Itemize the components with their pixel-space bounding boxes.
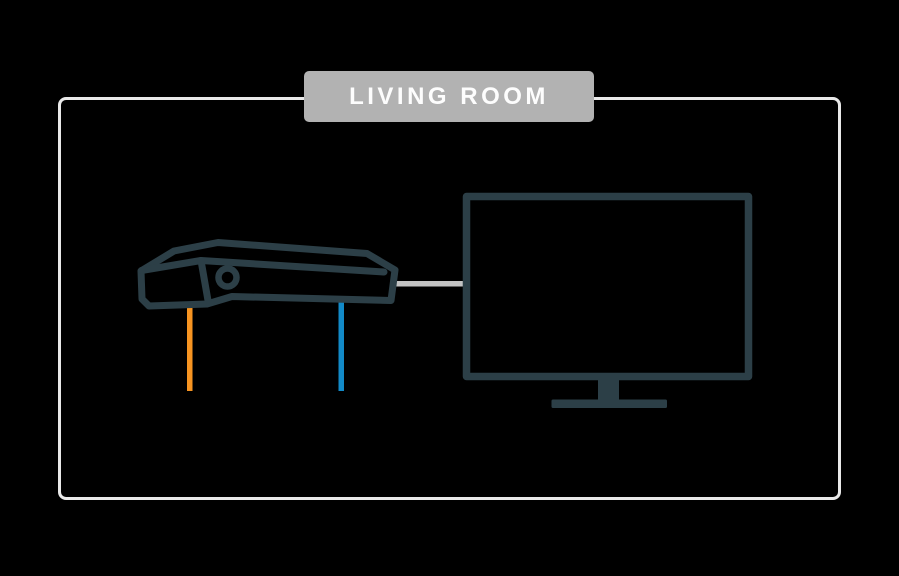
tv-frame: [467, 197, 749, 377]
tv-stand-base: [552, 400, 668, 409]
connection-cable: [390, 281, 466, 287]
set-top-box-icon: [141, 243, 395, 307]
blue-cable: [339, 296, 345, 391]
room-label-badge: LIVING ROOM: [304, 71, 594, 122]
orange-cable: [187, 296, 193, 391]
set-top-box-body: [141, 243, 395, 307]
room-label-text: LIVING ROOM: [349, 83, 549, 111]
tv-stand-neck: [598, 376, 619, 402]
tv-icon: [467, 197, 749, 409]
diagram-canvas: LIVING ROOM: [0, 0, 899, 576]
